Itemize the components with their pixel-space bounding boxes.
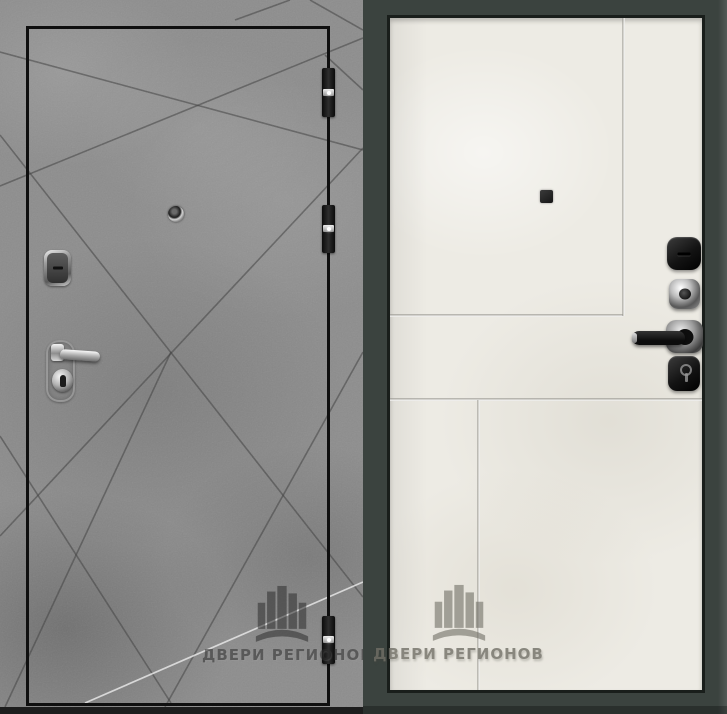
- hinge-pin-glint: [327, 91, 331, 95]
- lock-escutcheon: [44, 250, 71, 286]
- frame-edge-highlight: [718, 0, 727, 714]
- cylinder-cover: [668, 356, 700, 391]
- keyhole-slot: [60, 375, 66, 387]
- peephole: [540, 190, 553, 203]
- key-escutcheon: [669, 279, 700, 309]
- lever-tip-glint: [632, 333, 637, 343]
- panel-groove-vertical: [477, 400, 480, 690]
- door-interior-leaf: [387, 15, 705, 693]
- panel-groove-vertical: [622, 18, 625, 316]
- door-product-photo: ДВЕРИ РЕГИОНОВ: [0, 0, 727, 714]
- hinge-pin-glint: [327, 638, 331, 642]
- panel-groove-horizontal: [390, 398, 702, 401]
- keyhole-icon: [680, 364, 692, 376]
- thumbturn-slot: [678, 252, 691, 255]
- panel-groove-horizontal: [390, 314, 623, 317]
- hinge-bottom: [322, 616, 335, 664]
- peephole: [168, 206, 184, 222]
- hinge-middle: [322, 205, 335, 253]
- thumbturn-cover: [667, 237, 701, 270]
- escutcheon-slot: [53, 267, 63, 270]
- frame-bottom-shadow: [363, 706, 727, 714]
- floor-shadow-strip: [0, 707, 363, 714]
- keyhole: [52, 369, 73, 392]
- hinge-pin-glint: [327, 227, 331, 231]
- hinge-top: [322, 68, 335, 117]
- lever-handle: [632, 331, 685, 345]
- door-exterior-panel: ДВЕРИ РЕГИОНОВ: [0, 0, 363, 714]
- door-interior-panel: ДВЕРИ РЕГИОНОВ: [363, 0, 727, 714]
